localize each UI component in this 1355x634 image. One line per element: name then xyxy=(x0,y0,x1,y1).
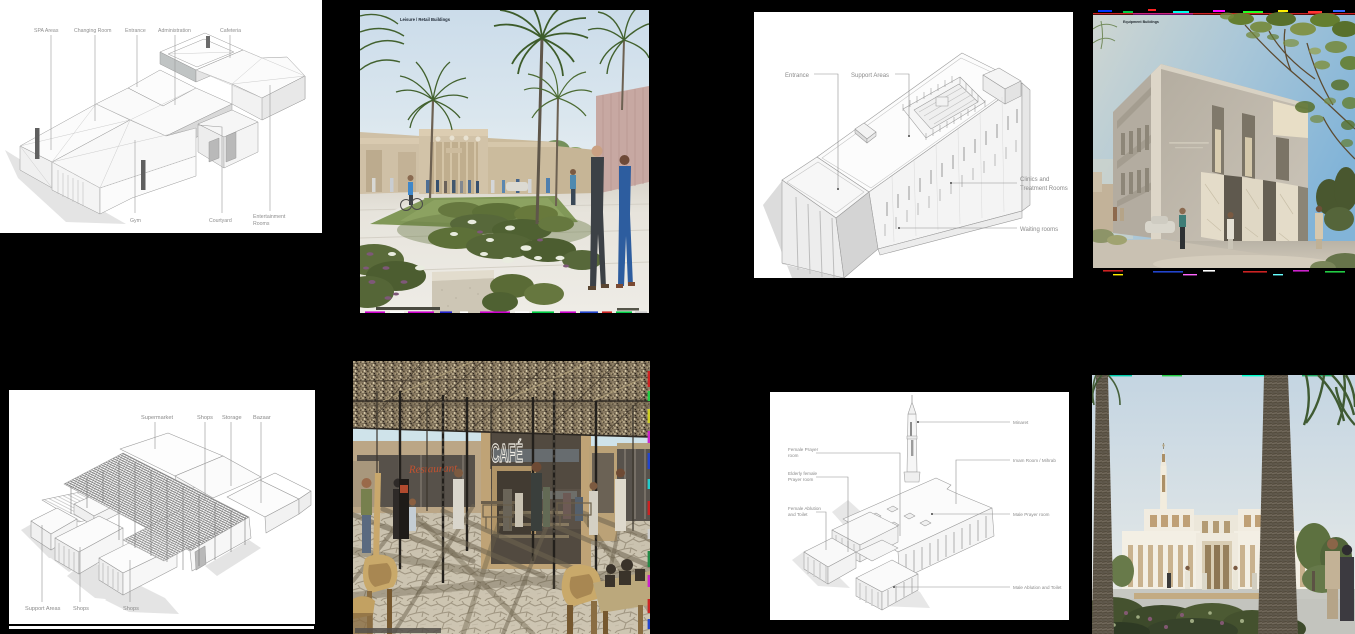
svg-text:Shops: Shops xyxy=(123,606,139,612)
svg-text:Administration: Administration xyxy=(158,28,191,34)
svg-text:Courtyard: Courtyard xyxy=(209,218,232,224)
svg-text:CAFÉ: CAFÉ xyxy=(491,438,523,468)
svg-text:Female Prayer: Female Prayer xyxy=(788,447,819,452)
svg-text:SPA Areas: SPA Areas xyxy=(34,28,59,34)
svg-text:Supermarket: Supermarket xyxy=(141,415,173,421)
svg-text:Restaurant: Restaurant xyxy=(408,462,459,476)
svg-text:Storage: Storage xyxy=(222,415,242,421)
svg-text:Cafeteria: Cafeteria xyxy=(220,28,241,34)
svg-text:Waiting rooms: Waiting rooms xyxy=(1020,227,1058,233)
svg-text:Male Ablution and Toilet: Male Ablution and Toilet xyxy=(1013,585,1062,590)
svg-text:Leisure / Retail Buildings: Leisure / Retail Buildings xyxy=(400,17,451,22)
svg-text:Imam Room / Mihrab: Imam Room / Mihrab xyxy=(1013,458,1056,463)
svg-text:Male Prayer room: Male Prayer room xyxy=(1013,512,1050,517)
svg-text:room: room xyxy=(788,453,799,458)
svg-text:Support Areas: Support Areas xyxy=(851,73,889,79)
svg-text:Clinics and: Clinics and xyxy=(1020,177,1049,183)
svg-text:Bazaar: Bazaar xyxy=(253,415,271,421)
svg-text:Elderly female: Elderly female xyxy=(788,471,818,476)
svg-text:Gym: Gym xyxy=(130,218,141,224)
svg-text:Equipment Buildings: Equipment Buildings xyxy=(1123,20,1159,24)
svg-text:Treatment Rooms: Treatment Rooms xyxy=(1020,186,1068,192)
svg-text:Shops: Shops xyxy=(197,415,213,421)
svg-text:Entrance: Entrance xyxy=(125,28,146,34)
svg-text:Changing Room: Changing Room xyxy=(74,28,112,34)
svg-text:Shops: Shops xyxy=(73,606,89,612)
svg-text:Rooms: Rooms xyxy=(253,221,270,227)
svg-text:Minaret: Minaret xyxy=(1013,420,1029,425)
svg-text:Entertainment: Entertainment xyxy=(253,214,286,220)
svg-text:Female Ablution: Female Ablution xyxy=(788,506,821,511)
svg-text:Support Areas: Support Areas xyxy=(25,606,61,612)
svg-text:Entrance: Entrance xyxy=(785,73,810,79)
svg-text:Prayer room: Prayer room xyxy=(788,477,813,482)
svg-text:and Toilet: and Toilet xyxy=(788,512,808,517)
